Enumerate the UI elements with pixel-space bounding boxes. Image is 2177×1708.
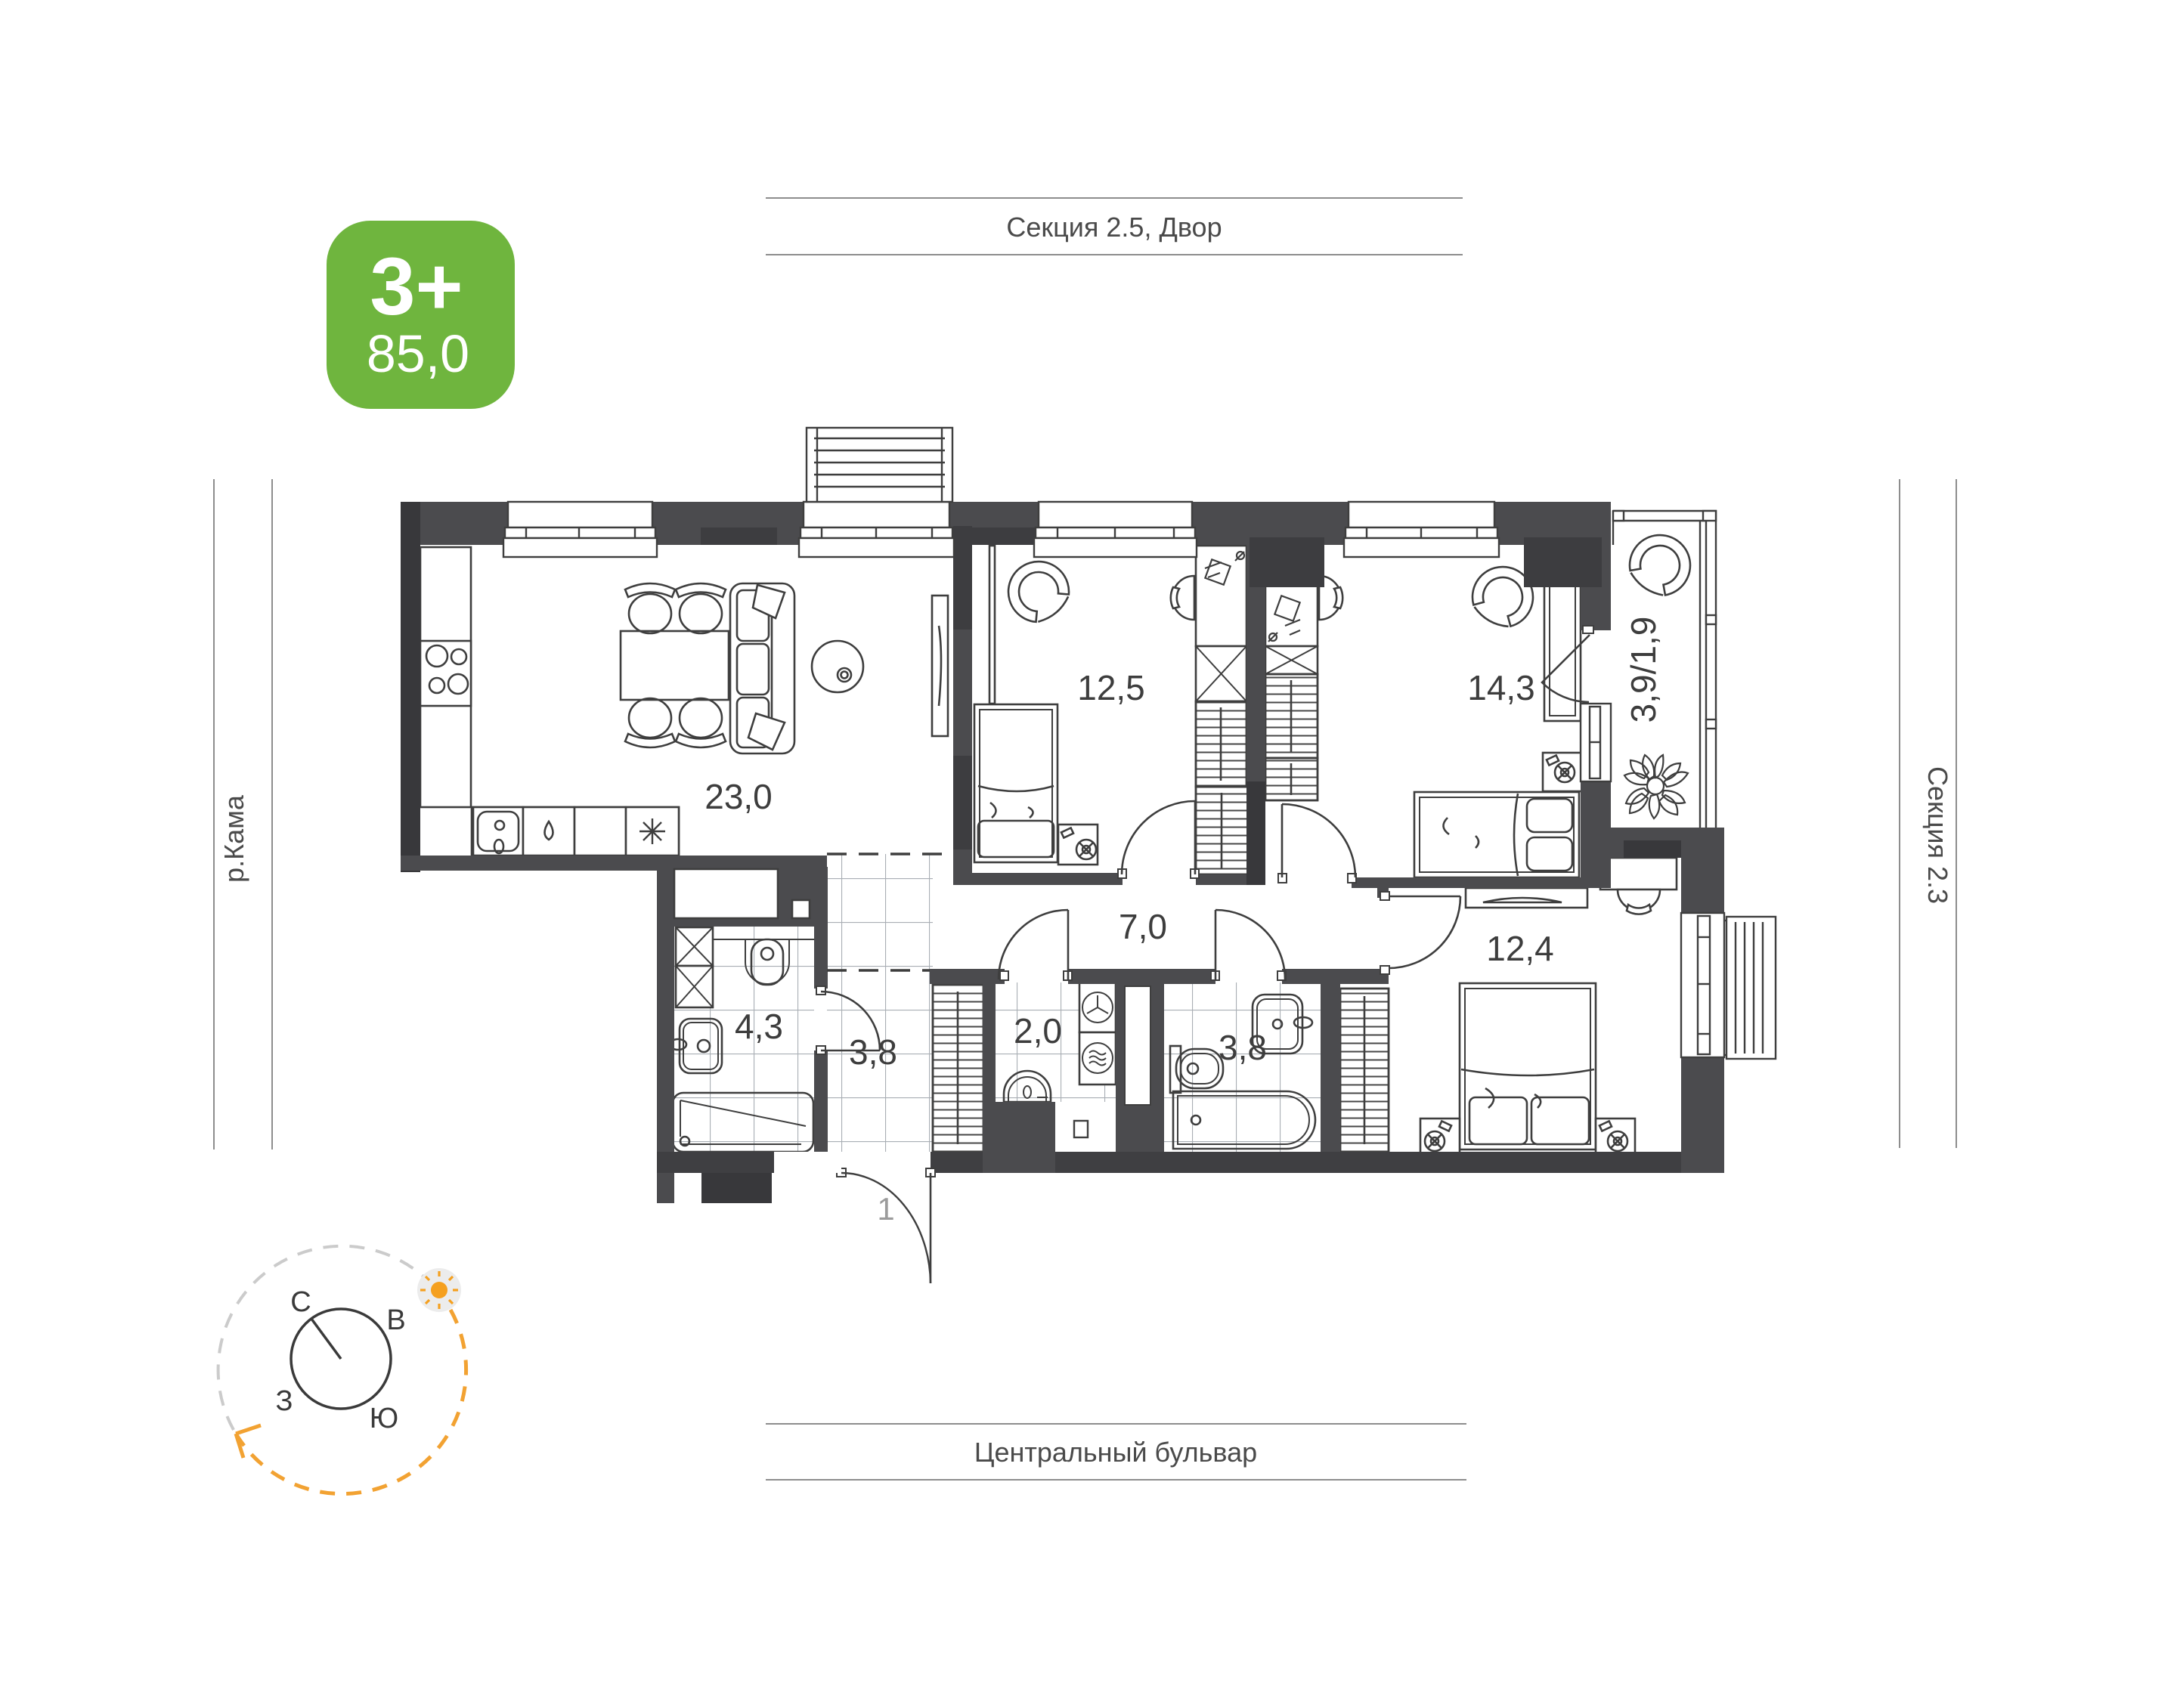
svg-text:3+: 3+: [370, 240, 463, 332]
svg-text:7,0: 7,0: [1119, 907, 1167, 946]
svg-text:2,0: 2,0: [1014, 1011, 1062, 1050]
svg-text:1: 1: [877, 1191, 894, 1227]
svg-text:С: С: [290, 1286, 311, 1318]
svg-text:14,3: 14,3: [1467, 668, 1535, 707]
svg-text:3,8: 3,8: [1219, 1028, 1267, 1067]
svg-text:Центральный бульвар: Центральный бульвар: [974, 1437, 1257, 1468]
svg-text:3,9/1,9: 3,9/1,9: [1624, 617, 1663, 723]
svg-text:З: З: [276, 1385, 293, 1417]
svg-text:Секция 2.3: Секция 2.3: [1922, 766, 1953, 904]
svg-text:3,8: 3,8: [849, 1032, 897, 1072]
svg-text:В: В: [386, 1304, 405, 1336]
svg-text:Секция 2.5, Двор: Секция 2.5, Двор: [1006, 212, 1222, 243]
svg-text:12,4: 12,4: [1486, 929, 1554, 968]
svg-text:4,3: 4,3: [735, 1007, 783, 1046]
svg-text:23,0: 23,0: [705, 777, 773, 816]
svg-text:р.Кама: р.Кама: [218, 794, 249, 883]
svg-text:85,0: 85,0: [367, 324, 469, 383]
svg-text:Ю: Ю: [370, 1403, 398, 1434]
svg-text:12,5: 12,5: [1077, 668, 1145, 707]
